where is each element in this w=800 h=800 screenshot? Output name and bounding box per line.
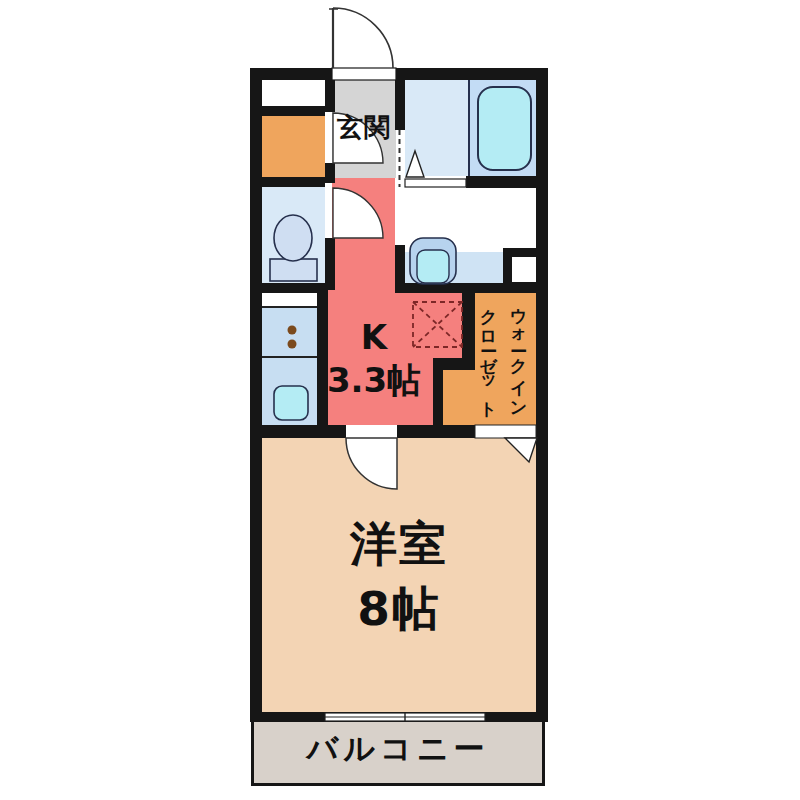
toilet-room-floor bbox=[262, 187, 325, 283]
wic-label-line1: ウォークイン bbox=[504, 297, 534, 432]
western-room-label: 洋室 8帖 bbox=[262, 512, 536, 642]
kitchen-counter bbox=[262, 308, 317, 425]
wall bbox=[262, 177, 325, 187]
kitchen-label: K 3.3帖 bbox=[312, 318, 436, 400]
wall bbox=[395, 68, 405, 130]
room-type-label: 洋室 bbox=[262, 512, 536, 577]
wall bbox=[466, 176, 536, 188]
bathtub-deck bbox=[468, 80, 536, 176]
shoe-closet-floor bbox=[262, 116, 325, 177]
entrance-label: 玄関 bbox=[332, 113, 396, 143]
wall bbox=[250, 712, 548, 722]
balcony-label: バルコニー bbox=[251, 731, 545, 767]
room-size-label: 8帖 bbox=[262, 577, 536, 642]
counter-divider bbox=[262, 356, 317, 358]
wall bbox=[397, 425, 475, 438]
counter-shelf bbox=[262, 293, 317, 308]
storage-niche bbox=[262, 80, 325, 106]
kitchen-size-label: 3.3帖 bbox=[312, 361, 436, 400]
wall bbox=[536, 68, 548, 722]
wall bbox=[262, 106, 325, 116]
wall bbox=[325, 80, 335, 112]
wall bbox=[262, 283, 328, 293]
wall bbox=[262, 425, 346, 438]
floorplan-page: { "floorplan": { "type": "floor_plan", "… bbox=[0, 0, 800, 800]
kitchen-door-opening bbox=[346, 425, 397, 438]
wall bbox=[250, 68, 262, 722]
wall bbox=[325, 163, 335, 183]
pipe-space-inner bbox=[512, 257, 536, 282]
entrance-door-arc-icon bbox=[333, 8, 393, 68]
walk-in-closet-label: ウォークイン クローゼット bbox=[468, 297, 534, 432]
vanity-floor-strip bbox=[405, 252, 503, 283]
wic-label-line2: クローゼット bbox=[474, 297, 504, 432]
kitchen-corridor-floor bbox=[332, 178, 395, 293]
bathroom-door bbox=[405, 179, 466, 187]
kitchen-type-label: K bbox=[312, 318, 436, 357]
